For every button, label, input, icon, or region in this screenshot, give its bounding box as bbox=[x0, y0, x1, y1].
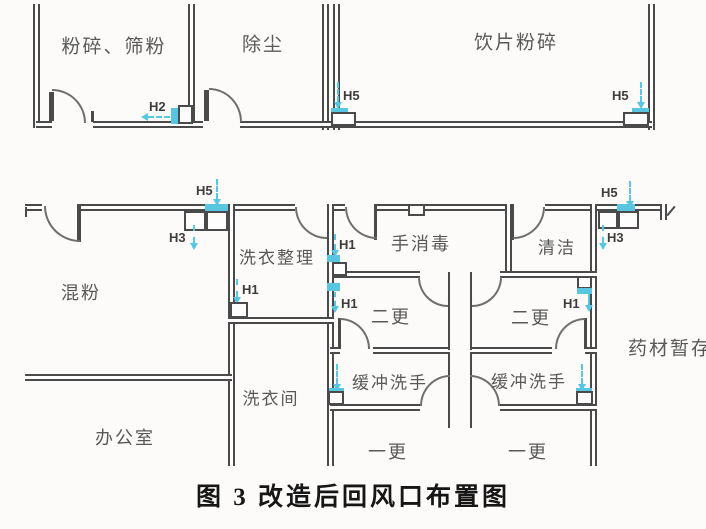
door-arc bbox=[209, 88, 242, 122]
vent-label: H5 bbox=[343, 88, 360, 103]
door-arc bbox=[472, 277, 502, 307]
wall-segment bbox=[33, 4, 40, 128]
wall-segment bbox=[500, 404, 597, 411]
wall-segment bbox=[660, 204, 667, 220]
return-air-vent-icon bbox=[205, 204, 228, 211]
wall-segment bbox=[448, 272, 472, 350]
door-arc bbox=[418, 277, 448, 307]
vent-box bbox=[178, 105, 193, 124]
room-label-first-change-left: 一更 bbox=[368, 438, 408, 464]
vent-label: H5 bbox=[196, 183, 213, 198]
wall-segment bbox=[80, 204, 295, 211]
door-leaf bbox=[91, 111, 94, 122]
vent-box bbox=[206, 211, 228, 231]
vent-label: H1 bbox=[563, 296, 580, 311]
return-air-vent-icon bbox=[617, 204, 635, 211]
room-label-buffer-handwash-left: 缓冲洗手 bbox=[352, 369, 428, 394]
airflow-arrow-icon bbox=[148, 116, 170, 118]
door-arc bbox=[52, 89, 86, 123]
vent-label: H5 bbox=[612, 88, 629, 103]
airflow-arrow-icon bbox=[599, 243, 607, 250]
return-air-vent-icon bbox=[327, 255, 340, 262]
room-label-crushing-sieving: 粉碎、筛粉 bbox=[61, 32, 166, 59]
airflow-arrow-icon bbox=[236, 279, 238, 297]
wall-segment bbox=[228, 204, 235, 466]
wall-segment bbox=[330, 404, 420, 411]
wall-segment bbox=[545, 204, 662, 211]
wall-segment bbox=[377, 204, 512, 211]
room-label-buffer-handwash-right: 缓冲洗手 bbox=[491, 368, 567, 393]
room-label-herb-storage: 药材暂存 bbox=[628, 334, 706, 361]
wall-segment bbox=[25, 204, 42, 211]
wall-segment bbox=[240, 121, 652, 128]
wall-segment bbox=[228, 317, 334, 324]
door-arc bbox=[345, 207, 377, 239]
wall-break-mark bbox=[666, 206, 675, 216]
airflow-arrow-icon bbox=[334, 292, 336, 306]
vent-box bbox=[230, 302, 248, 318]
vent-box bbox=[331, 112, 356, 126]
room-label-hand-disinfection: 手消毒 bbox=[391, 230, 451, 256]
vent-box bbox=[328, 391, 344, 405]
door-arc bbox=[295, 207, 327, 239]
wall-segment bbox=[472, 347, 552, 354]
airflow-arrow-icon bbox=[585, 305, 593, 312]
figure-caption: 图 3 改造后回风口布置图 bbox=[0, 477, 706, 513]
room-label-laundry-sorting: 洗衣整理 bbox=[239, 244, 315, 269]
vent-box bbox=[618, 211, 639, 229]
airflow-arrow-icon bbox=[334, 234, 336, 250]
airflow-arrow-icon bbox=[193, 225, 195, 243]
room-label-office: 办公室 bbox=[95, 424, 155, 450]
airflow-arrow-icon bbox=[141, 113, 148, 121]
airflow-arrow-icon bbox=[337, 82, 339, 102]
vent-label: H2 bbox=[149, 99, 166, 114]
airflow-arrow-icon bbox=[190, 243, 198, 250]
door-arc bbox=[340, 318, 370, 349]
floor-plan: H2 H5 H5 粉碎、筛粉 除尘 饮片粉碎 bbox=[0, 0, 706, 529]
airflow-arrow-icon bbox=[581, 364, 583, 384]
room-label-dust-removal: 除尘 bbox=[242, 30, 284, 57]
vent-box bbox=[184, 211, 206, 231]
wall-segment bbox=[322, 4, 329, 130]
airflow-arrow-icon bbox=[602, 225, 604, 243]
vent-box bbox=[623, 112, 649, 126]
vent-label: H1 bbox=[242, 282, 259, 297]
wall-segment bbox=[36, 121, 52, 128]
return-air-vent-icon bbox=[171, 108, 178, 124]
door-arc bbox=[44, 206, 80, 242]
vent-label: H3 bbox=[607, 230, 624, 245]
vent-box bbox=[332, 262, 347, 276]
vent-box bbox=[576, 391, 593, 405]
wall-segment bbox=[327, 204, 334, 466]
vent-box bbox=[598, 211, 618, 229]
airflow-arrow-icon bbox=[216, 179, 218, 199]
room-label-second-change-right: 二更 bbox=[511, 304, 551, 330]
wall-notch bbox=[408, 204, 425, 216]
wall-segment bbox=[25, 374, 232, 381]
room-label-laundry-room: 洗衣间 bbox=[243, 385, 300, 410]
return-air-vent-icon bbox=[327, 283, 340, 291]
wall-segment bbox=[25, 207, 27, 217]
room-label-first-change-right: 一更 bbox=[508, 438, 548, 464]
vent-label: H1 bbox=[341, 296, 358, 311]
airflow-arrow-icon bbox=[588, 293, 590, 305]
airflow-arrow-icon bbox=[336, 364, 338, 384]
door-arc bbox=[555, 318, 585, 349]
airflow-arrow-icon bbox=[331, 306, 339, 313]
room-label-cleaning: 清洁 bbox=[538, 234, 576, 259]
room-label-second-change-left: 二更 bbox=[371, 303, 411, 329]
wall-segment bbox=[373, 347, 448, 354]
vent-label: H3 bbox=[169, 230, 186, 245]
wall-segment bbox=[648, 4, 655, 130]
vent-label: H5 bbox=[601, 185, 618, 200]
vent-label: H1 bbox=[339, 237, 356, 252]
wall-segment bbox=[448, 352, 472, 428]
wall-segment bbox=[590, 204, 597, 466]
room-label-slice-crushing: 饮片粉碎 bbox=[474, 28, 558, 55]
airflow-arrow-icon bbox=[640, 82, 642, 102]
room-label-powder-mixing: 混粉 bbox=[61, 279, 101, 305]
airflow-arrow-icon bbox=[629, 181, 631, 201]
